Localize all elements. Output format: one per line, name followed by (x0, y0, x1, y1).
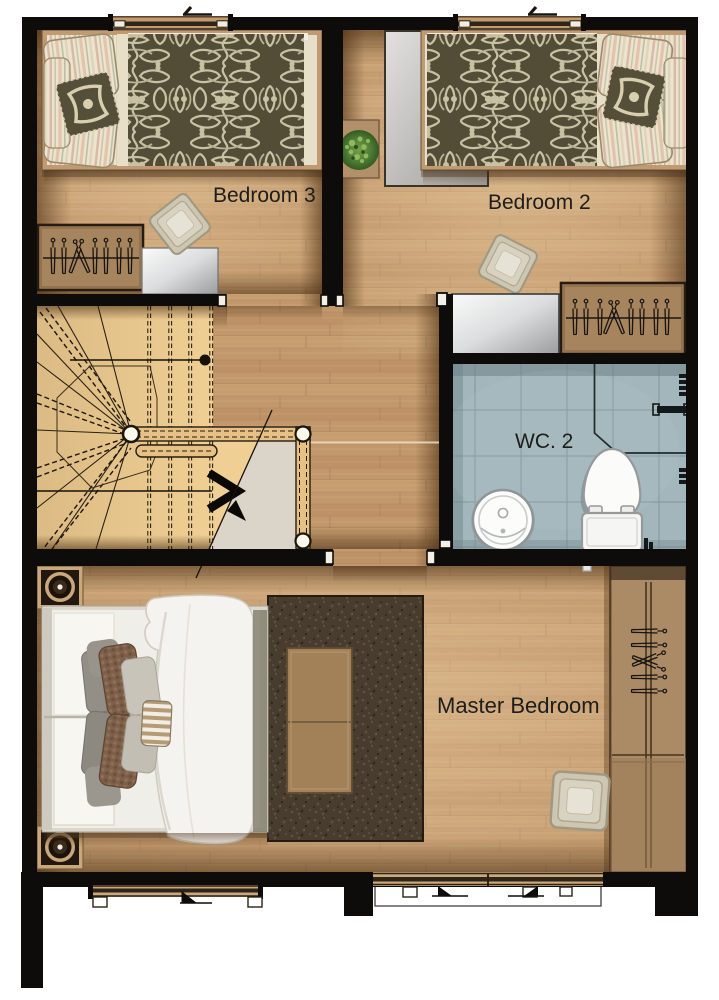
svg-text:Bedroom 3: Bedroom 3 (213, 184, 316, 207)
svg-text:Master Bedroom: Master Bedroom (437, 693, 600, 718)
svg-text:Bedroom 2: Bedroom 2 (488, 191, 591, 214)
svg-text:WC. 2: WC. 2 (515, 430, 573, 453)
